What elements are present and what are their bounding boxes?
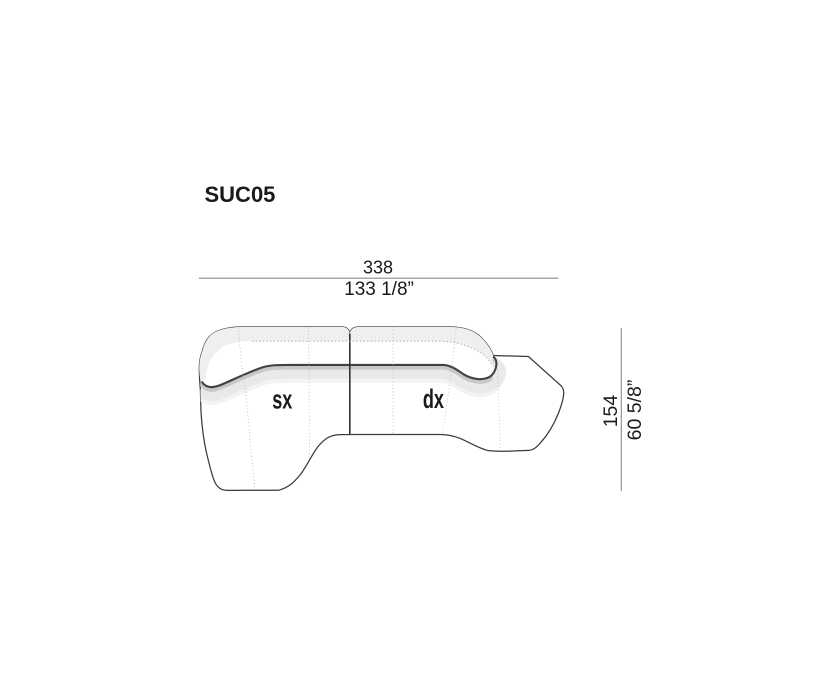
svg-text:133 1/8”: 133 1/8” bbox=[344, 279, 414, 300]
svg-text:sx: sx bbox=[272, 384, 292, 415]
svg-text:dx: dx bbox=[423, 383, 444, 414]
svg-text:SUC05: SUC05 bbox=[205, 182, 276, 207]
svg-text:60 5/8”: 60 5/8” bbox=[624, 380, 646, 441]
svg-text:154: 154 bbox=[600, 395, 622, 428]
svg-text:338: 338 bbox=[363, 258, 393, 278]
